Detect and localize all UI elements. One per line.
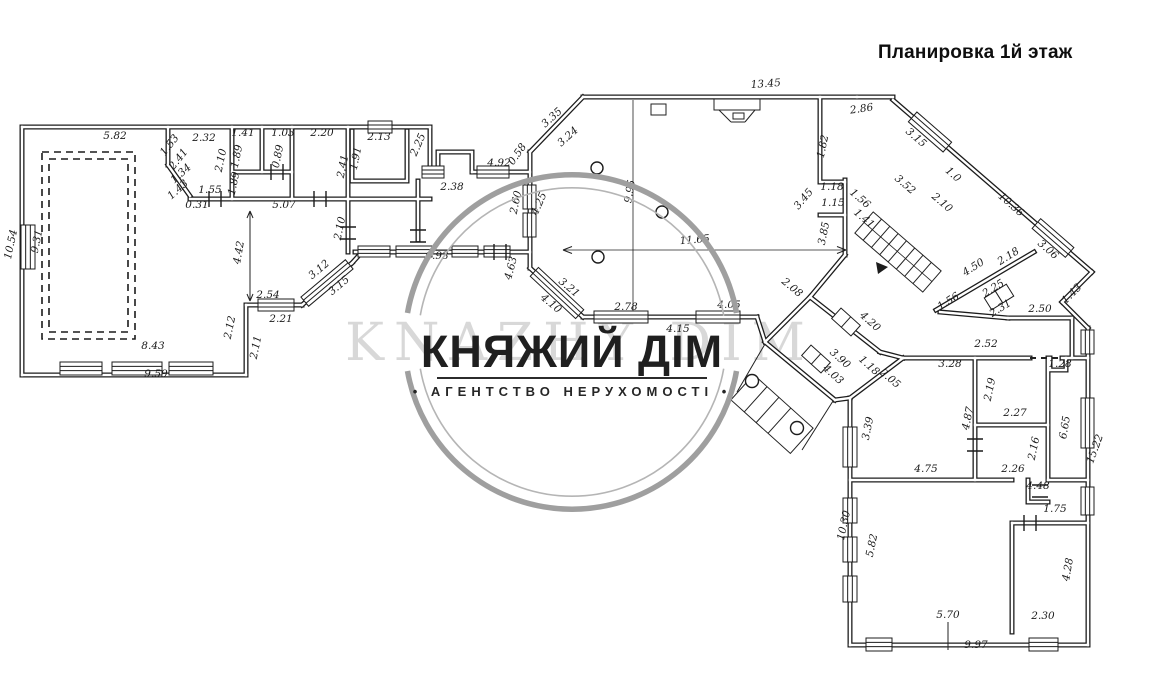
- window: [1029, 638, 1058, 651]
- dimension-label: 3.85: [816, 220, 833, 246]
- dimension-label: 1.0: [943, 165, 964, 185]
- dimension-label: 1.82: [815, 133, 832, 159]
- dimension-label: 0.89: [270, 143, 287, 169]
- dimension-label: 2.21: [268, 313, 292, 325]
- dimension-label: 2.32: [191, 132, 216, 144]
- dimension-label: 4.28: [1060, 557, 1076, 583]
- dimension-label: 2.25: [408, 131, 429, 158]
- dimension-label: 2.38: [439, 181, 464, 193]
- dimension-label: 2.26: [1000, 463, 1025, 475]
- pool-dashed-outline: [42, 152, 135, 339]
- dimension-label: 3.28: [938, 358, 962, 370]
- dimension-label: 5.82: [864, 532, 881, 558]
- window: [169, 362, 213, 375]
- dimension-label: 1.41: [231, 127, 254, 139]
- dimension-label: 3.24: [555, 124, 580, 149]
- window: [1081, 487, 1094, 515]
- dimension-label: 3.45: [792, 186, 816, 212]
- window: [523, 213, 536, 237]
- porch-steps: [731, 375, 813, 454]
- dimension-label: 4.75: [913, 463, 938, 475]
- floor-plan-canvas: KNAZHY DIM: [0, 0, 1150, 683]
- dimension-label: 3.52: [892, 173, 918, 198]
- dimension-label: 2.60: [508, 189, 525, 216]
- window: [358, 246, 390, 257]
- dimension-label: 1.18: [820, 181, 844, 193]
- dimension-label: 2.12: [222, 314, 239, 341]
- dimension-label: 9.59: [144, 368, 168, 380]
- dimension-label: 2.19: [982, 376, 999, 403]
- dimension-label: 0.58: [506, 141, 529, 167]
- porch-column: [791, 422, 804, 435]
- page-title: Планировка 1й этаж: [878, 42, 1138, 64]
- dimension-label: 5.07: [272, 199, 296, 211]
- dimension-label: 2.86: [848, 101, 874, 116]
- dimension-label: 2.27: [1002, 407, 1027, 419]
- dimension-label: 4.63: [502, 255, 520, 282]
- stair-direction-mark: [876, 262, 888, 274]
- dimension-label: 2.20: [309, 127, 334, 139]
- dimension-label: 4.50: [959, 256, 986, 279]
- dimension-label: 1.55: [198, 184, 222, 196]
- dimension-label: 1.56: [935, 290, 961, 313]
- dimension-label: 2.10: [213, 147, 230, 174]
- porch-column: [746, 375, 759, 388]
- dimension-label: 2.13: [366, 131, 391, 143]
- dimension-label: 10.36: [996, 190, 1027, 219]
- dimension-label: 1.89: [226, 170, 243, 196]
- window: [452, 246, 478, 257]
- window: [1081, 330, 1094, 354]
- dimension-label: 10.54: [2, 228, 20, 260]
- watermark: КНЯЖИЙ ДІМ • АГЕНТСТВО НЕРУХОМОСТІ •: [408, 175, 737, 509]
- watermark-tagline-text: • АГЕНТСТВО НЕРУХОМОСТІ •: [413, 384, 732, 399]
- dimension-label: 1.15: [821, 197, 845, 209]
- dimension-label: 2.08: [778, 275, 805, 300]
- window: [422, 166, 444, 178]
- dimension-label: 1.28: [1048, 358, 1072, 370]
- dimension-label: 4.48: [1025, 480, 1050, 492]
- dimension-label: 0.31: [185, 199, 208, 211]
- dimension-label: 2.54: [255, 289, 279, 301]
- hall-column: [591, 162, 603, 174]
- dimension-label: 2.16: [1026, 435, 1043, 462]
- dimension-label: 8.43: [141, 340, 165, 352]
- dimension-label: 3.39: [860, 415, 877, 441]
- dimension-label: 6.65: [1057, 415, 1073, 440]
- fireplace: [651, 99, 760, 122]
- dimension-label: 2.11: [248, 335, 265, 361]
- dimension-label: 9.97: [964, 639, 988, 651]
- dimension-label: 2.52: [973, 338, 998, 350]
- dimension-label: 5.82: [103, 130, 127, 142]
- dimension-label: 13.45: [750, 77, 781, 91]
- window: [843, 576, 857, 602]
- dimension-label: 2.30: [1030, 610, 1055, 622]
- dimension-label: 1.03: [271, 127, 295, 139]
- scanned-floorplan-page: KNAZHY DIM: [0, 0, 1150, 683]
- window: [60, 362, 102, 375]
- dimension-label: 4.42: [231, 240, 247, 266]
- window: [866, 638, 892, 651]
- dimension-label: 5.70: [936, 609, 960, 621]
- hall-column: [592, 251, 604, 263]
- window: [696, 311, 740, 323]
- dimension-label: 2.10: [928, 190, 955, 215]
- dimension-label: 4.20: [857, 309, 883, 334]
- dimension-label: 1.75: [1043, 503, 1067, 515]
- dimension-label: 2.78: [613, 301, 638, 313]
- watermark-brand-text: КНЯЖИЙ ДІМ: [421, 326, 723, 377]
- window: [843, 427, 857, 467]
- dimension-label: 2.50: [1027, 303, 1052, 315]
